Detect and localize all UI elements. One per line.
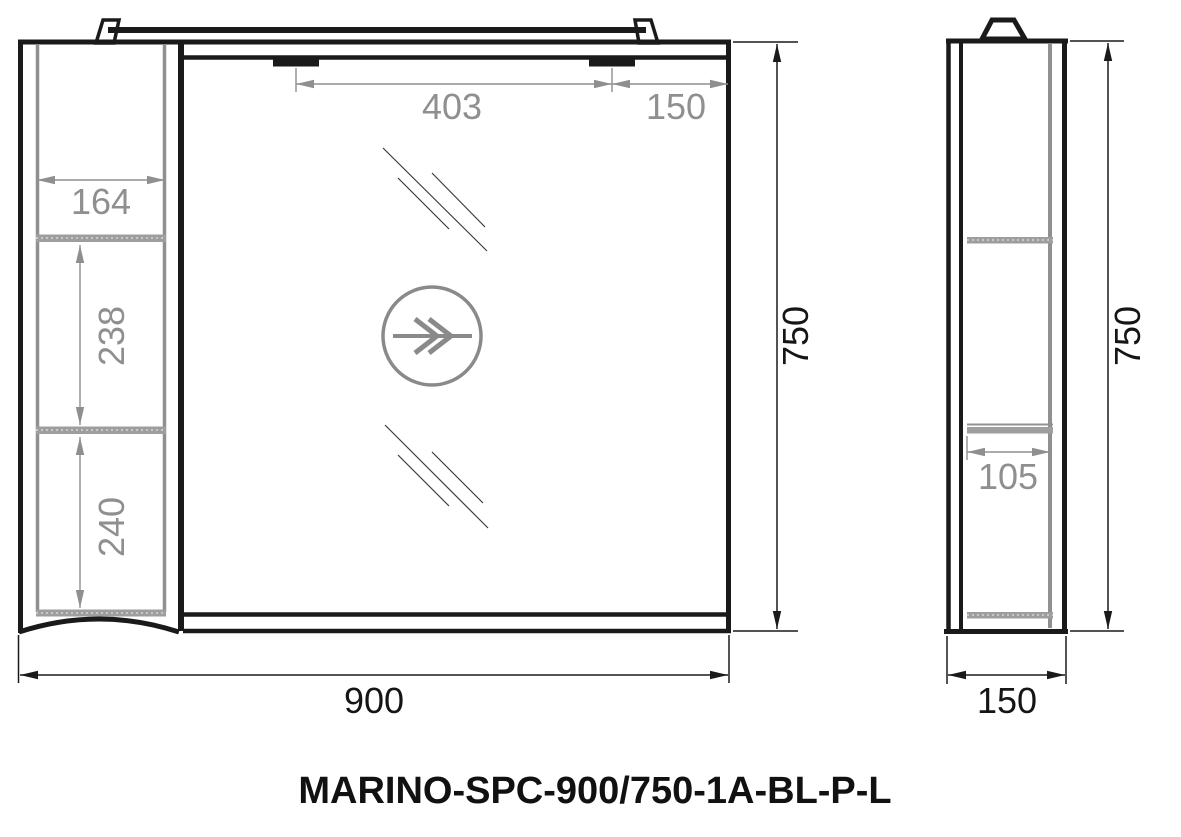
side-shelves [967, 237, 1053, 619]
mirror-reflection-lower [385, 425, 488, 528]
dim-label-overall-width: 900 [344, 680, 404, 721]
side-outline [944, 39, 1068, 634]
dim-label-shelf-spacing-upper: 238 [91, 306, 132, 366]
side-dimensions: 105 750 150 [947, 41, 1148, 721]
side-light-fixture [982, 20, 1025, 39]
side-shelf-middle [967, 427, 1053, 434]
side-view: 105 750 150 [944, 20, 1148, 721]
dim-label-hinge-to-edge: 150 [646, 86, 706, 127]
model-title: MARINO-SPC-900/750-1A-BL-P-L [298, 770, 891, 812]
technical-drawing-page: 403 150 164 238 240 750 900 [0, 0, 1181, 837]
side-shelf-lower [967, 612, 1053, 619]
curved-bottom-edge [19, 619, 179, 632]
dim-label-shelf-width: 164 [71, 181, 131, 222]
dim-label-shelf-depth: 105 [978, 456, 1038, 497]
dim-label-overall-depth: 150 [977, 680, 1037, 721]
side-shelf-upper [967, 237, 1053, 244]
hinge-mark-left [273, 59, 319, 67]
front-view: 403 150 164 238 240 750 900 [18, 20, 816, 721]
dim-label-side-height: 750 [1107, 306, 1148, 366]
door-swing-symbol [383, 287, 481, 385]
dim-label-shelf-spacing-lower: 240 [91, 497, 132, 557]
dim-label-hinge-spacing: 403 [422, 86, 482, 127]
hinge-mark-right [589, 59, 635, 67]
mirror-reflection-upper [383, 148, 487, 251]
dim-label-overall-height: 750 [775, 306, 816, 366]
mirror-cabinet-drawing: 403 150 164 238 240 750 900 [0, 0, 1181, 837]
